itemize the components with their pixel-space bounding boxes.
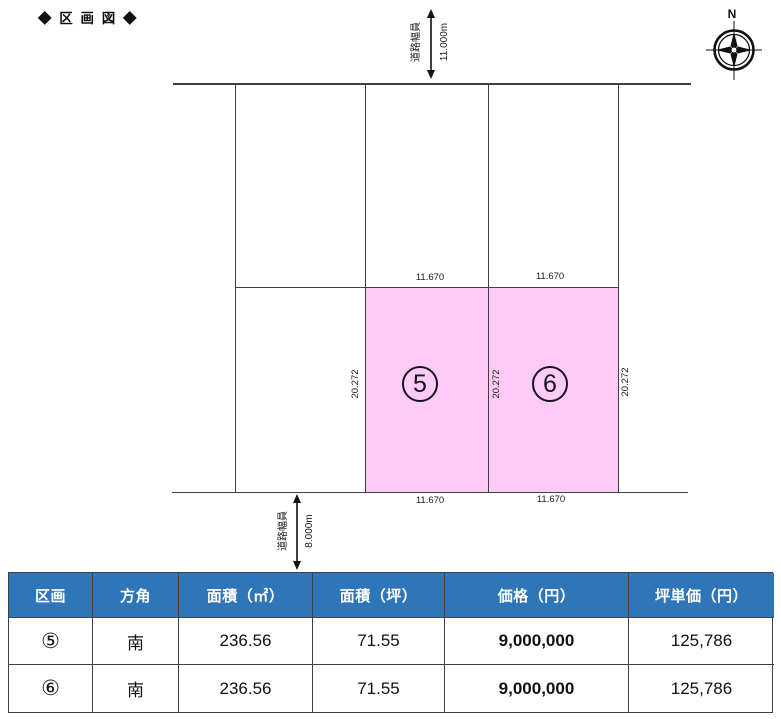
table-row-lot5-id: ⑤ (9, 618, 93, 665)
lot-5-number: 5 (413, 370, 427, 399)
lot-5-width-top-dim: 11.670 (398, 272, 462, 283)
col-header-area-tsubo: 面積（坪） (313, 573, 445, 618)
table-row-lot5-area-tsubo: 71.55 (313, 618, 445, 665)
top-road-line (173, 83, 691, 85)
compass-rose-icon: N (702, 4, 766, 82)
table-row-lot6-direction: 南 (93, 665, 179, 712)
table-row-lot6-id: ⑥ (9, 665, 93, 712)
lot-5-width-bottom-dim: 11.670 (398, 495, 462, 506)
top-road-width-label: 道路幅員 (411, 10, 423, 74)
table-row-lot6-area-tsubo: 71.55 (313, 665, 445, 712)
table-row-lot5-direction: 南 (93, 618, 179, 665)
lot-6-number: 6 (543, 370, 557, 399)
table-row-lot6-price: 9,000,000 (445, 665, 629, 712)
lot-map-page: ◆ 区 画 図 ◆ N 道路幅員 11.000m 11.670 11.670 (0, 0, 781, 719)
table-row-lot5-price: 9,000,000 (445, 618, 629, 665)
lot-6-number-badge: 6 (532, 366, 568, 402)
col-header-unit-price: 坪単価（円） (629, 573, 774, 618)
lot-summary-table: 区画 方角 面積（㎡） 面積（坪） 価格（円） 坪単価（円） ⑤ 南 236.5… (8, 572, 773, 713)
lot-6-width-bottom-dim: 11.670 (519, 494, 583, 505)
page-title: ◆ 区 画 図 ◆ (38, 7, 139, 27)
top-road-width-arrow-icon (424, 9, 438, 79)
table-row-lot5-area-sqm: 236.56 (179, 618, 313, 665)
lot-6-depth-left-dim: 20.272 (491, 352, 503, 416)
lot-6-depth-right-dim: 20.272 (620, 350, 632, 414)
top-road-width-value: 11.000m (439, 10, 451, 74)
bottom-road-width-arrow-icon (290, 494, 304, 570)
table-row-lot5-unit-price: 125,786 (629, 618, 774, 665)
lot-5-number-badge: 5 (402, 366, 438, 402)
col-header-area-sqm: 面積（㎡） (179, 573, 313, 618)
col-header-price: 価格（円） (445, 573, 629, 618)
col-header-direction: 方角 (93, 573, 179, 618)
parcel-boundary-middle (235, 287, 620, 289)
compass-north-label: N (728, 7, 737, 21)
lot-6-width-top-dim: 11.670 (518, 271, 582, 282)
lot-5-depth-left-dim: 20.272 (350, 352, 362, 416)
bottom-road-width-value: 8.000m (304, 499, 316, 563)
bottom-road-line (172, 492, 688, 494)
col-header-lot: 区画 (9, 573, 93, 618)
table-row-lot6-unit-price: 125,786 (629, 665, 774, 712)
bottom-road-width-label: 道路幅員 (278, 499, 290, 563)
table-row-lot6-area-sqm: 236.56 (179, 665, 313, 712)
